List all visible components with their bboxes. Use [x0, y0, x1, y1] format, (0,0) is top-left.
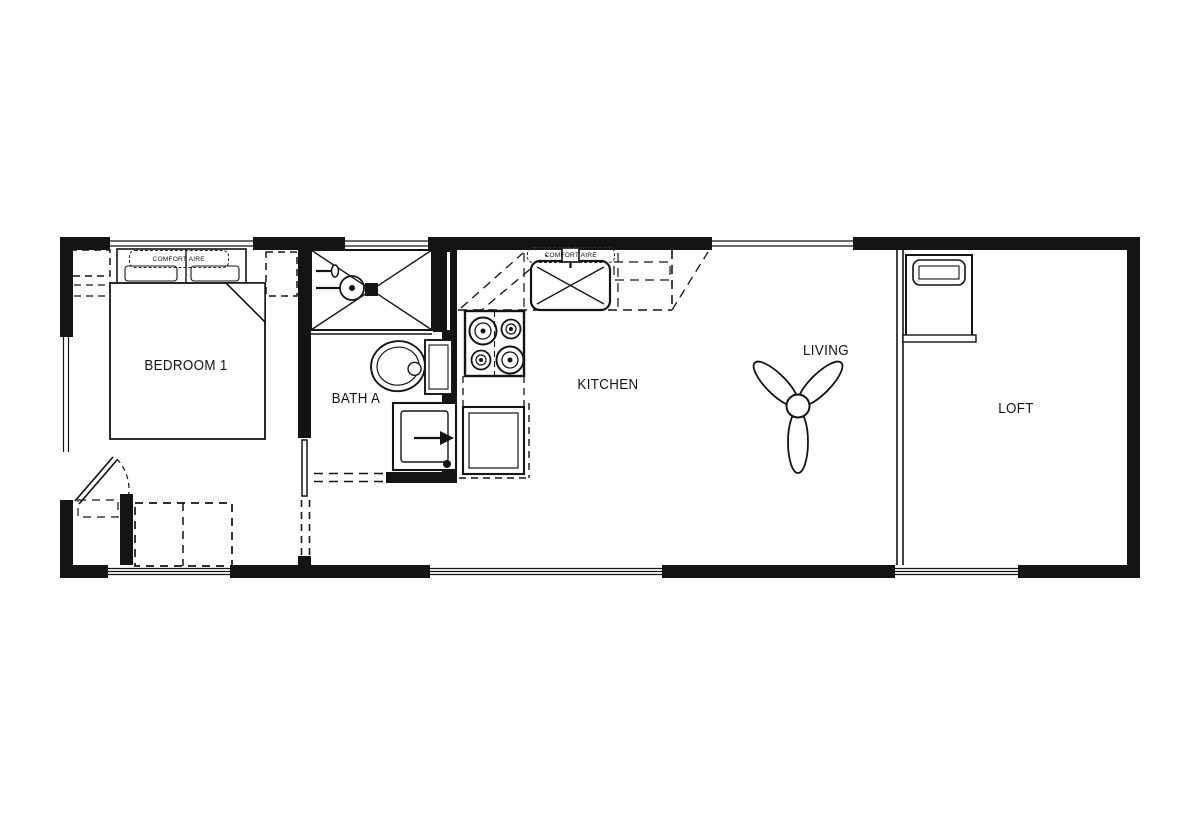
bed — [110, 249, 265, 439]
window-top-bedroom — [110, 237, 253, 250]
window-left-bedroom — [60, 337, 73, 452]
entry-door-opening — [60, 452, 73, 500]
washer-dryer — [393, 403, 456, 470]
window-bottom-bedroom — [108, 565, 230, 578]
shower — [311, 250, 432, 334]
kitchen-ac-unit-label: COMFORT AIRE — [527, 247, 615, 263]
bath-south-dashed-wall — [314, 474, 386, 482]
bedroom-ac-unit-label: COMFORT AIRE — [129, 250, 229, 268]
floor-plan-canvas: BEDROOM 1 BATH A KITCHEN LIVING LOFT COM… — [0, 0, 1200, 818]
stud-wall-living-loft — [897, 250, 903, 565]
window-top-bath — [345, 237, 428, 250]
ceiling-fan — [748, 356, 849, 473]
window-bottom-loft — [895, 565, 1018, 578]
room-label-living: LIVING — [803, 343, 849, 359]
room-label-loft: LOFT — [998, 401, 1034, 417]
window-top-living — [712, 237, 853, 250]
room-label-kitchen: KITCHEN — [577, 377, 638, 393]
kitchen-sink — [531, 261, 610, 310]
bedroom-ac-unit-text: COMFORT AIRE — [153, 255, 205, 262]
wall-slit — [447, 252, 450, 330]
toilet-tank — [425, 340, 452, 394]
loft-steps — [903, 255, 976, 342]
room-label-bath-a: BATH A — [332, 391, 381, 407]
room-label-bedroom-1: BEDROOM 1 — [144, 358, 227, 374]
pocket-door — [302, 440, 310, 560]
toilet — [368, 338, 428, 395]
range — [463, 311, 524, 408]
kitchen-ac-unit-text: COMFORT AIRE — [545, 251, 597, 258]
refrigerator — [459, 403, 529, 478]
window-bottom-dining — [430, 565, 662, 578]
wardrobe — [78, 500, 232, 566]
